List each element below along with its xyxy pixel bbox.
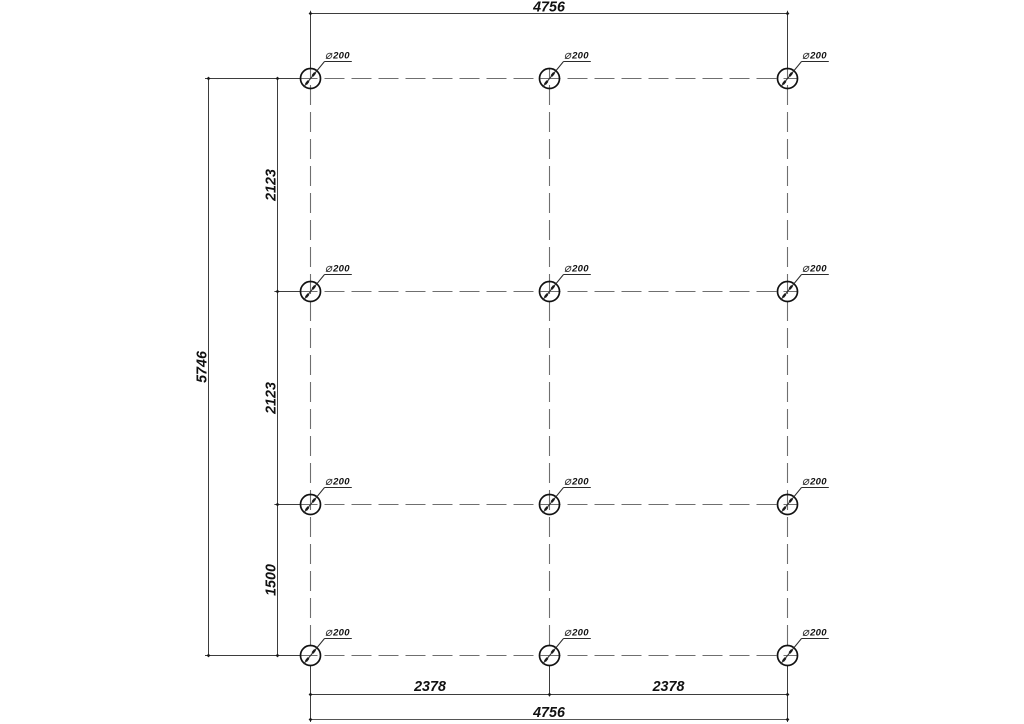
svg-text:200: 200 [332, 477, 350, 488]
svg-text:2123: 2123 [263, 382, 279, 415]
svg-text:200: 200 [809, 264, 827, 275]
svg-text:200: 200 [571, 51, 589, 62]
svg-text:2378: 2378 [413, 679, 446, 695]
svg-text:2378: 2378 [652, 679, 685, 695]
svg-text:200: 200 [571, 628, 589, 639]
svg-text:200: 200 [332, 51, 350, 62]
svg-text:2123: 2123 [263, 169, 279, 202]
svg-text:200: 200 [571, 477, 589, 488]
svg-text:5746: 5746 [195, 350, 211, 383]
svg-text:200: 200 [332, 264, 350, 275]
svg-text:1500: 1500 [263, 564, 279, 596]
svg-text:200: 200 [809, 477, 827, 488]
svg-text:4756: 4756 [532, 0, 566, 16]
svg-text:4756: 4756 [532, 705, 566, 721]
svg-text:200: 200 [571, 264, 589, 275]
svg-text:200: 200 [809, 628, 827, 639]
svg-text:200: 200 [809, 51, 827, 62]
svg-text:200: 200 [332, 628, 350, 639]
